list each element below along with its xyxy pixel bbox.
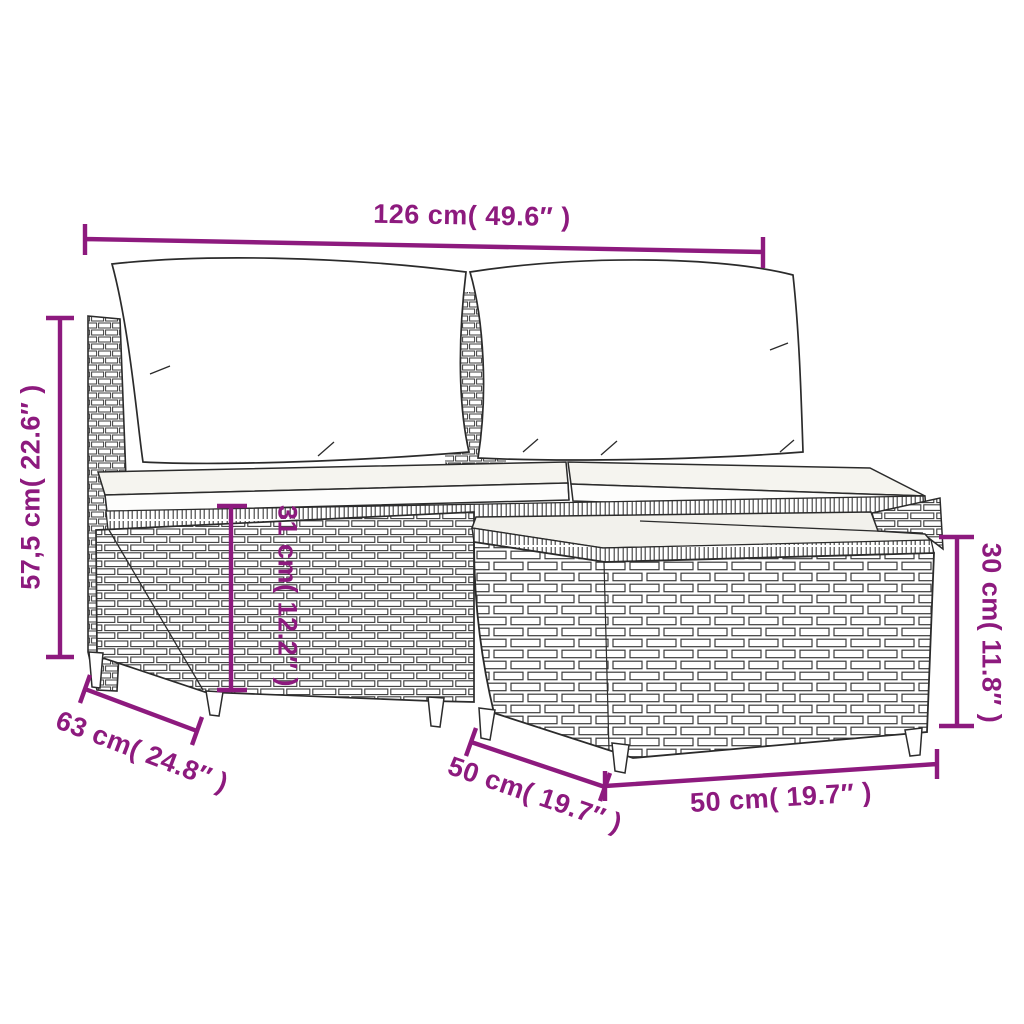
dim-label-overall-width: 126 cm( 49.6″ ) <box>373 199 571 233</box>
footstool-leg-right <box>905 728 922 756</box>
line-art-canvas <box>0 0 1024 1024</box>
dim-footstool-height-line <box>939 537 974 726</box>
sofa-leg-back-left <box>89 652 103 688</box>
dim-label-seat-height: 31 cm( 12.2″ ) <box>272 505 303 687</box>
product-dimension-diagram: 126 cm( 49.6″ ) 57,5 cm( 22.6″ ) 31 cm( … <box>0 0 1024 1024</box>
footstool-body <box>474 542 934 758</box>
footstool-leg-front <box>612 743 629 773</box>
sofa-leg-front-left <box>206 691 223 716</box>
dim-label-overall-height: 57,5 cm( 22.6″ ) <box>16 384 47 590</box>
footstool-leg-left <box>479 708 495 740</box>
footstool-line-art <box>472 512 934 773</box>
back-cushion-right <box>470 260 803 460</box>
dim-label-footstool-height: 30 cm( 11.8″ ) <box>976 543 1007 724</box>
dim-overall-height-line <box>46 318 74 657</box>
sofa-leg-front-middle <box>428 697 444 727</box>
back-cushion-left <box>112 258 469 464</box>
